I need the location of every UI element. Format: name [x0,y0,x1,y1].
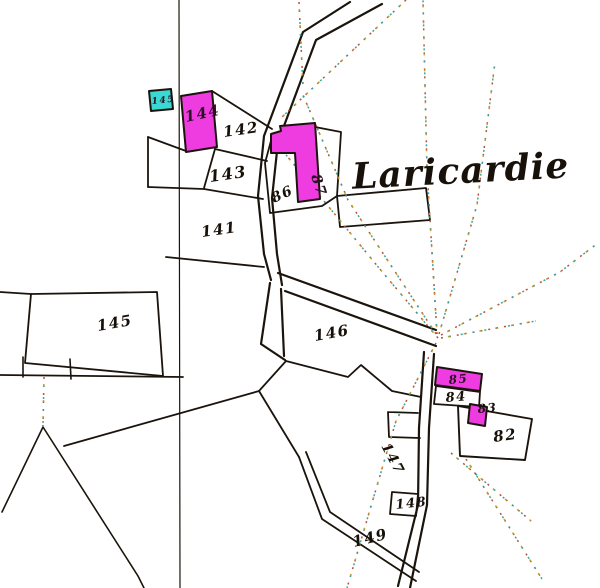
parcel-label-143: 143 [208,162,248,186]
plot-86-right-outline [337,188,430,227]
boundary-tick-b [70,359,71,379]
section-line-vertical [179,0,180,588]
road-south-east-edge [281,289,284,356]
dotted-junction-to-road-bend-layer1 [303,95,436,334]
dotted-junction-northeast [441,243,598,335]
boundary-149-north [64,361,286,446]
boundary-145-west-extension [0,292,31,294]
parcel-label-83: 83 [477,400,498,416]
dotted-junction-north-layer1 [423,0,437,334]
boundary-146-south-zigzag [286,361,421,397]
dotted-82-southeast-a [451,453,531,521]
parcel-label-145: 145 [96,311,134,335]
path-149-southeast-a [299,457,416,581]
parcel-label-82: 82 [492,425,518,446]
boundary-left-small-diagonal [148,137,186,151]
parcel-label-142: 142 [222,118,260,141]
boundary-147-west [259,391,299,457]
boundary-142-143 [215,149,267,161]
dotted-junction-northeast-layer1 [441,243,598,335]
boundary-141-bottom [166,257,264,267]
cadastral-map: 1441421431418687145145146147148149858483… [0,0,600,588]
dotted-junction-east [441,321,536,338]
parcel-label-85: 85 [448,371,469,387]
parcel-label-84: 84 [445,389,467,406]
parcel-label-146: 146 [313,321,351,345]
dotted-junction-north-layer2 [423,0,437,334]
parcel-147-notch [388,412,420,438]
road-branch-north-edge [278,273,436,330]
map-canvas: 1441421431418687145145146147148149858483… [0,0,600,588]
parcel-label-147: 147 [377,440,407,477]
dotted-junction-north [423,0,437,334]
dotted-junction-north-northeast [439,62,495,334]
parcel-label-141: 141 [200,218,238,241]
dotted-junction-northeast-layer2 [441,243,598,335]
dotted-junction-to-road-bend [303,95,436,334]
boundary-v-lines [2,427,144,588]
dotted-junction-north-northeast-layer1 [439,62,495,334]
dotted-junction-to-road-bend-layer2 [303,95,436,334]
parcel-145-outline [25,292,163,376]
dotted-top-diagonal [281,0,406,118]
parcel-label-148: 148 [395,495,428,513]
parcel-label-149: 149 [351,525,390,551]
dotted-junction-north-northeast-layer2 [439,62,495,334]
boundary-143-bottom [148,187,263,199]
